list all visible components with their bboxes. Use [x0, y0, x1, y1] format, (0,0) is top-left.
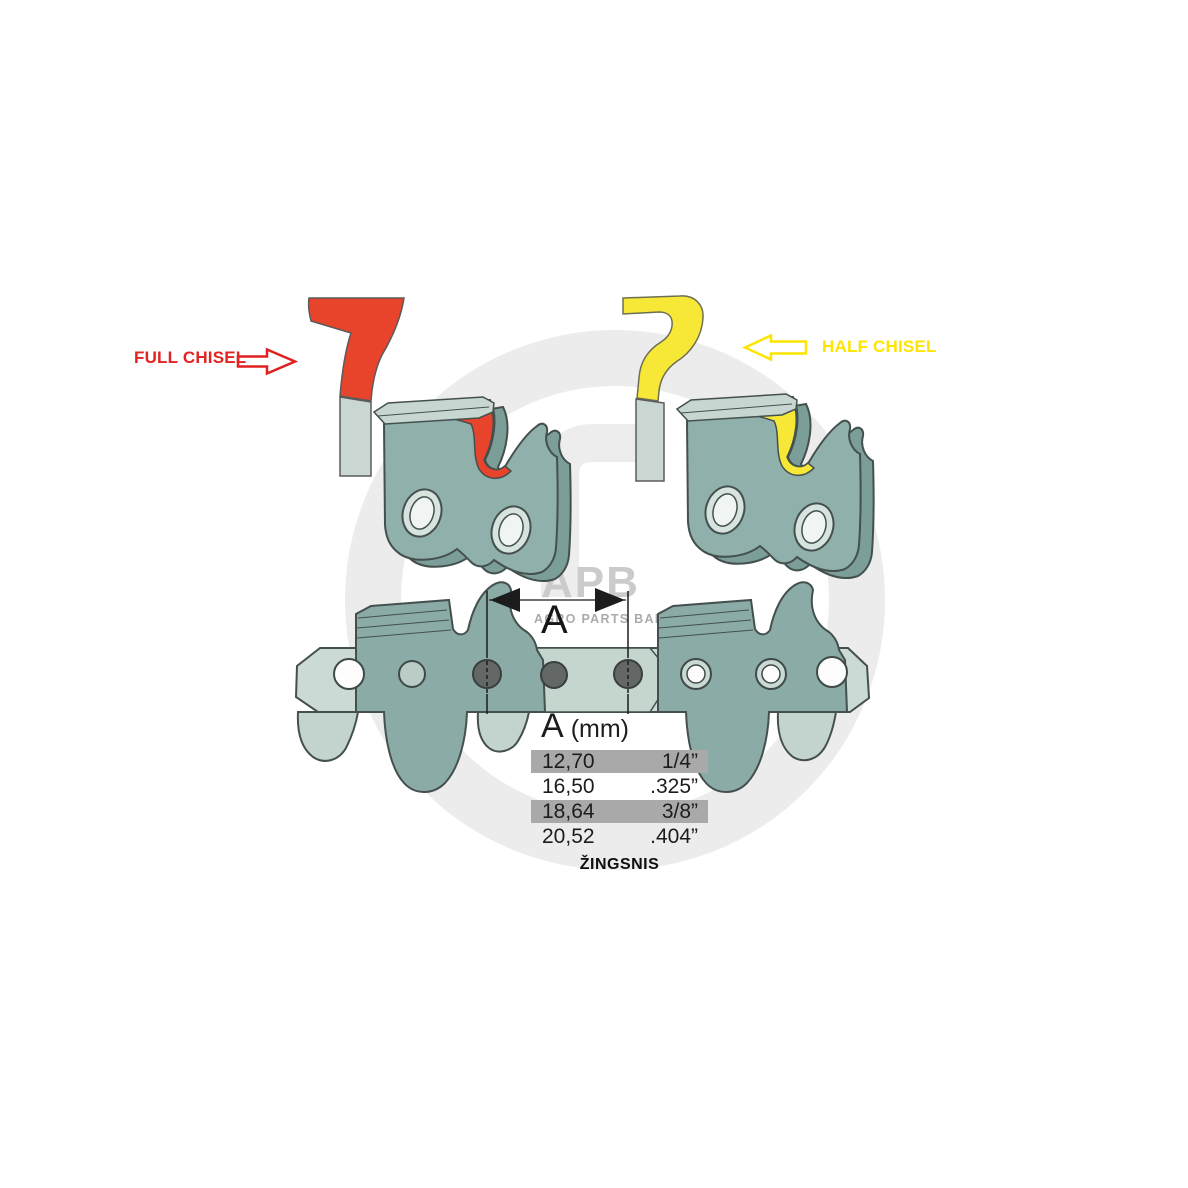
full-chisel-arrow-icon: [238, 350, 295, 374]
pitch-table-header: A (mm): [541, 707, 708, 747]
inch-value: .325”: [650, 775, 698, 798]
drive-link-tang: [298, 712, 358, 761]
pitch-table-rows: 12,70 1/4” 16,50 .325” 18,64 3/8” 20,52 …: [531, 750, 708, 848]
dimension-letter: A: [541, 598, 568, 643]
chain-cutter-link: [356, 582, 545, 792]
chain-pitch-diagram: APB AGRO PARTS BALTIJA: [0, 0, 1188, 1188]
diagram-canvas: APB AGRO PARTS BALTIJA: [0, 0, 1188, 1188]
drive-link-tang: [478, 712, 529, 752]
full-chisel-stem: [340, 397, 371, 476]
chain-hole: [399, 661, 425, 687]
half-chisel-cutter: [677, 394, 874, 578]
half-chisel-label: HALF CHISEL: [822, 337, 937, 357]
inch-value: 1/4”: [662, 750, 698, 773]
chain-rivet: [541, 662, 567, 688]
pitch-table-header-unit: (mm): [571, 715, 629, 744]
inch-value: .404”: [650, 825, 698, 848]
chain-hole: [817, 657, 847, 687]
half-chisel-stem: [636, 399, 664, 481]
full-chisel-label: FULL CHISEL: [134, 348, 246, 368]
table-row: 16,50 .325”: [531, 775, 708, 798]
full-chisel-cross-section: [309, 298, 404, 401]
inch-value: 3/8”: [662, 800, 698, 823]
pitch-caption: ŽINGSNIS: [531, 856, 708, 874]
mm-value: 16,50: [542, 775, 595, 798]
chain-ring-hole: [756, 659, 786, 689]
pitch-table: A (mm) 12,70 1/4” 16,50 .325” 18,64 3/8”…: [531, 707, 708, 848]
mm-value: 12,70: [542, 750, 595, 773]
chain-ring-hole: [681, 659, 711, 689]
full-chisel-cutter: [374, 397, 571, 581]
table-row: 18,64 3/8”: [531, 800, 708, 823]
mm-value: 20,52: [542, 825, 595, 848]
table-row: 12,70 1/4”: [531, 750, 708, 773]
pitch-table-header-letter: A: [541, 707, 564, 746]
chain-hole: [334, 659, 364, 689]
half-chisel-arrow-icon: [745, 336, 806, 360]
table-row: 20,52 .404”: [531, 825, 708, 848]
mm-value: 18,64: [542, 800, 595, 823]
